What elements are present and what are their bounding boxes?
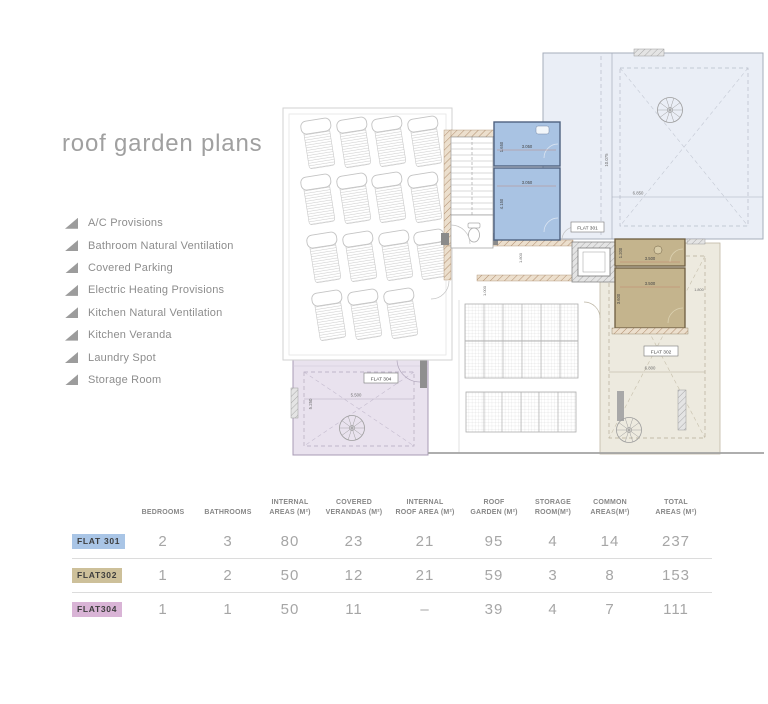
dim-10075: 10.075	[604, 153, 609, 167]
table-cell: 95	[462, 525, 526, 558]
dim-1200: 1.200	[618, 247, 623, 258]
table-cell: 21	[388, 525, 462, 558]
floor-plan: 6.850 10.075 6.800 1.800 5.500 5.250	[0, 0, 768, 480]
dim-1650: 1.650	[499, 141, 504, 152]
table-cell: 50	[260, 592, 320, 626]
flat-304-roof-garden: 5.500 5.250	[291, 358, 428, 455]
table-cell: 3	[526, 558, 580, 592]
dim-3050b: 3.050	[522, 180, 533, 185]
col-header: STORAGEROOM(M²)	[526, 498, 580, 525]
dim-4150: 4.150	[499, 198, 504, 209]
dim-5500: 5.500	[351, 393, 362, 398]
table-cell: 80	[260, 525, 320, 558]
dim-3600: 3.600	[616, 293, 621, 304]
table-cell: –	[388, 592, 462, 626]
table-cell: 2	[196, 558, 260, 592]
table-row-label: FLAT 301	[72, 525, 130, 558]
flat-304-chip: FLAT304	[72, 602, 122, 617]
dim-1800: 1.800	[518, 252, 523, 263]
table-cell: 2	[130, 525, 196, 558]
flat-301-label: FLAT 301	[577, 225, 598, 231]
flat-302-rooms: 3.500 1.200 3.500 3.600	[612, 239, 688, 334]
dim-1000: 1.000	[482, 285, 487, 296]
table-cell: 14	[580, 525, 640, 558]
dim-1800-east: 1.800	[694, 288, 704, 292]
table-cell: 11	[320, 592, 388, 626]
table-cell: 237	[640, 525, 712, 558]
dim-3050a: 3.050	[522, 144, 533, 149]
toilet-icon	[536, 126, 549, 134]
table-cell: 153	[640, 558, 712, 592]
flat-304-label: FLAT 304	[371, 376, 392, 382]
pergola-panels	[465, 304, 578, 432]
corner-cell	[72, 518, 130, 525]
dim-6800: 6.800	[645, 366, 656, 371]
flat-301-roof-garden: 6.850 10.075	[543, 49, 763, 239]
table-cell: 8	[580, 558, 640, 592]
col-header: COVEREDVERANDAS (M²)	[320, 498, 388, 525]
dim-3500b: 3.500	[645, 281, 656, 286]
dim-3500a: 3.500	[645, 256, 656, 261]
col-header: INTERNALROOF AREA (M²)	[388, 498, 462, 525]
table-cell: 59	[462, 558, 526, 592]
table-cell: 111	[640, 592, 712, 626]
table-cell: 23	[320, 525, 388, 558]
dim-5250: 5.250	[308, 398, 313, 409]
table-cell: 1	[196, 592, 260, 626]
table-cell: 4	[526, 525, 580, 558]
parking-area	[283, 108, 452, 360]
table-cell: 39	[462, 592, 526, 626]
flat-301-rooms: 3.050 1.650 3.050 4.150	[494, 122, 560, 240]
col-header: COMMONAREAS(M²)	[580, 498, 640, 525]
elevator	[572, 242, 616, 282]
col-header: ROOFGARDEN (M²)	[462, 498, 526, 525]
sink-icon	[654, 246, 662, 254]
dim-6850: 6.850	[633, 191, 644, 196]
table-cell: 1	[130, 592, 196, 626]
table-cell: 3	[196, 525, 260, 558]
col-header: INTERNALAREAS (M²)	[260, 498, 320, 525]
table-cell: 4	[526, 592, 580, 626]
col-header: BEDROOMS	[130, 508, 196, 525]
table-cell: 21	[388, 558, 462, 592]
areas-table: BEDROOMS BATHROOMS INTERNALAREAS (M²) CO…	[72, 498, 712, 626]
table-row-label: FLAT302	[72, 558, 130, 592]
flat-301-chip: FLAT 301	[72, 534, 125, 549]
table-cell: 1	[130, 558, 196, 592]
table-cell: 7	[580, 592, 640, 626]
col-header: BATHROOMS	[196, 508, 260, 525]
col-header: TOTALAREAS (M²)	[640, 498, 712, 525]
flat-302-chip: FLAT302	[72, 568, 122, 583]
table-cell: 12	[320, 558, 388, 592]
table-cell: 50	[260, 558, 320, 592]
wc-room	[451, 215, 493, 248]
table-row-label: FLAT304	[72, 592, 130, 626]
flat-302-label: FLAT 302	[651, 349, 672, 355]
